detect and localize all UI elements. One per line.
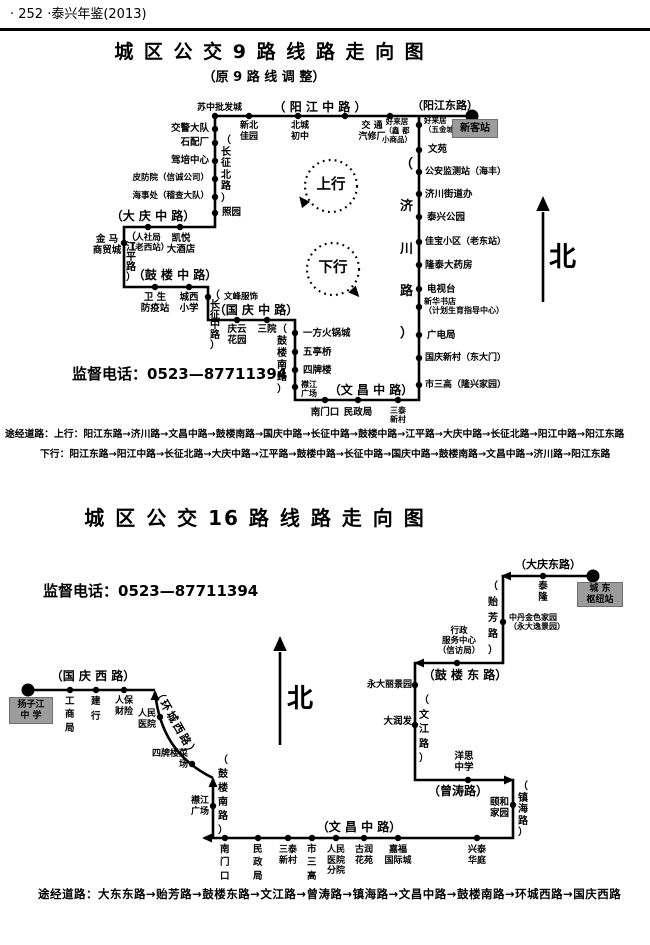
station-label: 广电局 [427,330,456,341]
station-label: 城西 小学 [179,292,198,314]
station-label: 金 马 商贸城 [93,234,122,256]
road-label: （长征中路） [210,291,220,345]
station-label: 三院 [257,324,276,335]
station-label: 好来居 （鑫 都 小商品） [382,118,412,145]
station-label: 人民 医院 分院 [327,845,345,877]
station-label: 工商局 [65,697,75,733]
compass-label: 北 [549,242,576,274]
station-label: 新华书店 （计划生育指导中心） [424,297,504,316]
station-label: 古润 花苑 [355,845,373,866]
station-label: 佳宝小区（老东站） [425,237,506,248]
station-label: 新北 佳园 [240,121,258,142]
station-label: 南门口 [311,407,340,418]
station-label: 人民 医院 [138,709,156,730]
station-label: 人保 财险 [115,696,133,717]
station-label: 隆泰大药房 [425,260,473,271]
station-label: 驾培中心 [171,155,209,166]
road-label: （文江路） [419,696,429,764]
station-label: 三泰 新村 [390,406,406,425]
yearbook-page: · 252 ·泰兴年鉴(2013) 城 区 公 交 9 路 线 路 走 向 图 … [0,0,650,945]
station-label: 三泰 新村 [279,845,297,866]
station-label: 建行 [91,697,101,721]
road-label: （国 庆 中 路） [214,303,299,317]
station-label: 襟江 广场 [191,796,209,817]
terminal-box: 扬子江 中 学 [9,697,53,724]
road-label: （鼓楼南路） [277,325,287,395]
direction-label: 下行 [319,260,348,277]
station-label: 卫 生 防疫站 [141,292,170,314]
road-label: （曾涛路） [428,784,488,798]
station-label: 皮防院（信诚公司） [132,173,209,183]
station-label: 庆云 花园 [227,324,246,346]
station-label: 南门口 [220,845,230,881]
station-label: 人社局 （老西站） [127,233,170,253]
station-label: 嘉福 国际城 [384,845,411,866]
road-label: （阳江东路） [412,100,478,113]
road-label: （ 阳 江 中 路 ） [274,100,367,114]
station-label: 国庆新村（东大门） [425,353,506,364]
station-label: 市三高 [307,845,317,881]
station-label: 民政局 [344,407,373,418]
direction-label: 上行 [317,177,346,194]
station-label: 泰兴公园 [427,212,465,223]
station-label: 大润发 [383,716,412,727]
station-label: 洋思 中学 [454,751,473,773]
station-label: 永大丽景园 [367,680,412,691]
station-label: 海事处（稽查大队） [132,191,209,201]
station-label: 石配厂 [180,137,209,148]
road-label: （长征北路） [221,136,231,204]
road-label: （鼓 楼 东 路） [423,668,508,682]
road-label: （鼓楼南路） [218,756,228,836]
road-label: （鼓 楼 中 路） [133,268,218,282]
station-label: 行政 服务中心 （信访局） [438,626,481,656]
station-label: 一方火锅城 [303,328,351,339]
station-label: 济川街道办 [425,189,473,200]
station-label: 电视台 [427,284,456,295]
station-label: 公安监测站（海丰） [425,167,506,178]
station-label: 五亭桥 [303,347,332,358]
station-label: 文苑 [428,144,447,155]
road-label: （镇海路） [518,782,528,838]
station-label: 中丹金色家园 （永大逸景园） [509,613,565,632]
road-label: （大庆东路） [515,559,581,572]
station-label: 苏中批发城 [197,103,242,114]
station-label: 泰 隆 [538,581,548,603]
station-label: 四牌楼菜 场 [152,749,188,770]
route-diagram-labels: 上行下行（ 阳 江 中 路 ）（阳江东路）（长征北路）（大 庆 中 路）（江平路… [0,0,650,945]
station-label: 颐和 家园 [490,797,509,819]
compass-label: 北 [287,684,313,715]
station-label: 襟江 广场 [301,380,317,399]
station-label: 文峰服饰 [224,292,258,302]
station-label: 四牌楼 [303,365,332,376]
station-label: 市三高（隆兴家园） [425,380,506,391]
road-label: （大 庆 中 路） [111,209,196,223]
station-label: 民政局 [253,845,263,881]
station-label: 照园 [222,207,241,218]
road-label: （国 庆 西 路） [51,669,136,683]
road-label: （文 昌 中 路） [329,383,414,397]
station-label: 凯悦 大酒店 [167,233,196,255]
station-label: 交警大队 [171,123,209,134]
terminal-box: 城 东 枢纽站 [577,582,623,607]
road-label: （济川路） [400,158,413,340]
station-label: 兴泰 华庭 [468,845,486,866]
road-label: （文 昌 中 路） [317,820,402,834]
terminal-box: 新客站 [452,119,498,138]
station-label: 北城 初中 [291,121,309,142]
road-label: （贻芳路） [488,582,498,656]
